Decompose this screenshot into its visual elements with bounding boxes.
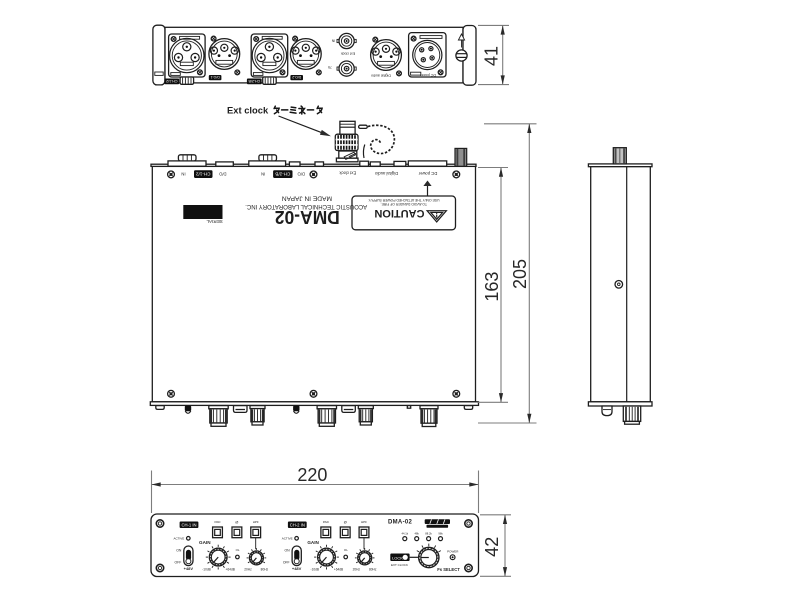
- svg-text:OFF: OFF: [175, 561, 182, 565]
- svg-text:Ext clock: Ext clock: [341, 51, 356, 55]
- svg-text:ACTIVE: ACTIVE: [282, 537, 293, 541]
- svg-text:41: 41: [482, 46, 502, 66]
- svg-text:CH-2/B: CH-2/B: [248, 79, 260, 83]
- svg-text:DC power: DC power: [419, 73, 436, 77]
- svg-text:OL: OL: [236, 548, 240, 552]
- svg-text:ON: ON: [285, 549, 291, 553]
- svg-text:EXT CLOCK: EXT CLOCK: [391, 563, 408, 567]
- svg-text:OFF: OFF: [283, 561, 290, 565]
- svg-text:88.2k: 88.2k: [425, 531, 432, 535]
- svg-text:80Hz: 80Hz: [261, 568, 269, 572]
- svg-text:+48V: +48V: [292, 566, 302, 571]
- svg-text:IN: IN: [261, 171, 265, 176]
- svg-text:SERIAL: SERIAL: [206, 219, 223, 224]
- svg-text:IN: IN: [331, 38, 335, 42]
- svg-text:44.1k: 44.1k: [402, 531, 409, 535]
- svg-text:IN: IN: [181, 171, 185, 176]
- svg-text:D/O: D/O: [218, 171, 226, 176]
- svg-text:CH-1/2: CH-1/2: [166, 79, 177, 83]
- svg-text:Ext clock: Ext clock: [339, 171, 357, 176]
- svg-text:Digital audio: Digital audio: [374, 171, 398, 176]
- svg-text:Fs SELECT: Fs SELECT: [437, 567, 460, 572]
- svg-text:USE ONLY THE ATTACHED POWER SU: USE ONLY THE ATTACHED POWER SUPPLY.: [368, 198, 440, 202]
- svg-text:+48V: +48V: [184, 566, 194, 571]
- svg-text:MADE IN JAPAN: MADE IN JAPAN: [282, 195, 332, 202]
- svg-text:Ext clock: Ext clock: [227, 104, 269, 115]
- svg-text:48k: 48k: [415, 531, 420, 535]
- svg-text:CH-2/B: CH-2/B: [275, 171, 290, 176]
- svg-text:DMA-02: DMA-02: [388, 519, 412, 525]
- svg-text:CAUTION: CAUTION: [374, 207, 424, 219]
- svg-text:LOCK: LOCK: [392, 556, 403, 561]
- svg-text:D/O-1: D/O-1: [210, 75, 219, 79]
- svg-text:205: 205: [510, 259, 530, 289]
- svg-text:20Hz: 20Hz: [353, 568, 361, 572]
- svg-text:20Hz: 20Hz: [244, 568, 252, 572]
- svg-text:CH-1 IN: CH-1 IN: [181, 522, 196, 527]
- svg-text:Ø: Ø: [344, 521, 347, 525]
- svg-text:Ø: Ø: [235, 521, 238, 525]
- svg-text:CH-1/2: CH-1/2: [195, 171, 210, 176]
- svg-text:DMA-02: DMA-02: [275, 207, 340, 227]
- svg-text:ON: ON: [176, 549, 182, 553]
- svg-text:D/O: D/O: [297, 171, 305, 176]
- svg-text:96k: 96k: [438, 531, 443, 535]
- svg-text:-10dB: -10dB: [202, 568, 211, 572]
- svg-text:CH-2 IN: CH-2 IN: [290, 522, 305, 527]
- svg-text:80Hz: 80Hz: [369, 568, 377, 572]
- svg-text:DC power: DC power: [418, 171, 437, 176]
- svg-text:HPF: HPF: [361, 520, 367, 524]
- svg-text:-10dB: -10dB: [311, 568, 320, 572]
- svg-text:+64dB: +64dB: [334, 568, 343, 572]
- svg-text:163: 163: [482, 272, 502, 302]
- svg-text:PAD: PAD: [215, 520, 222, 524]
- svg-text:PAD: PAD: [323, 520, 330, 524]
- svg-text:POWER: POWER: [447, 549, 459, 553]
- svg-text:75: 75: [328, 65, 332, 69]
- svg-text:220: 220: [297, 465, 327, 485]
- svg-text:GAIN: GAIN: [199, 540, 211, 545]
- svg-text:+64dB: +64dB: [226, 568, 235, 572]
- svg-text:HPF: HPF: [253, 520, 259, 524]
- svg-text:OL: OL: [344, 548, 348, 552]
- svg-text:D/O-2: D/O-2: [292, 75, 301, 79]
- svg-text:ACTIVE: ACTIVE: [173, 537, 184, 541]
- svg-text:GAIN: GAIN: [307, 540, 319, 545]
- svg-text:42: 42: [482, 537, 502, 557]
- svg-text:Digital audio: Digital audio: [371, 74, 391, 78]
